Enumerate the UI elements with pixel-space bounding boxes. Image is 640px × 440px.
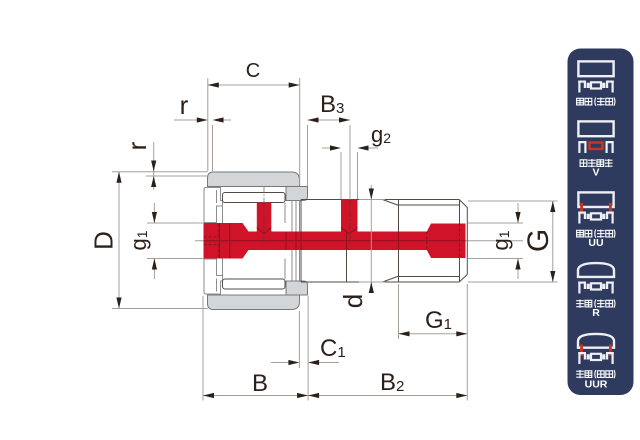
svg-text:G: G (522, 229, 555, 252)
svg-text:UU: UU (588, 237, 603, 249)
svg-text:C1: C1 (320, 335, 346, 362)
svg-text:V: V (592, 167, 599, 179)
svg-text:B: B (252, 370, 268, 397)
svg-text:g2: g2 (371, 122, 391, 147)
svg-text:g1: g1 (126, 230, 151, 250)
svg-text:D: D (89, 231, 119, 250)
svg-text:B2: B2 (380, 369, 404, 396)
svg-text:UUR: UUR (585, 379, 608, 391)
svg-text:d: d (338, 294, 368, 308)
svg-text:C: C (246, 60, 260, 82)
svg-text:B3: B3 (320, 91, 344, 118)
svg-text:r: r (180, 90, 189, 120)
svg-text:r: r (122, 141, 152, 150)
svg-text:G1: G1 (425, 307, 452, 334)
svg-text:g1: g1 (488, 230, 513, 250)
svg-text:R: R (592, 307, 600, 319)
